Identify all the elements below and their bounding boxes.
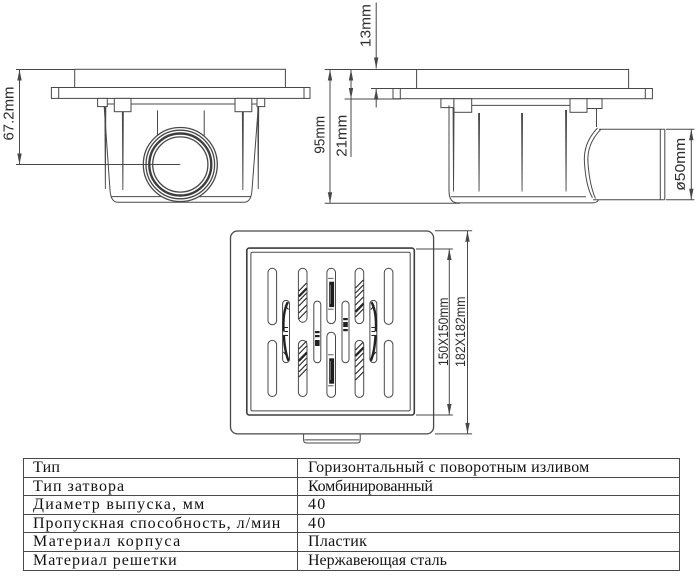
svg-text:67.2mm: 67.2mm: [2, 87, 18, 141]
svg-text:95mm: 95mm: [313, 116, 329, 154]
svg-text:21mm: 21mm: [335, 115, 351, 157]
svg-text:13mm: 13mm: [358, 4, 374, 47]
svg-text:150X150mm: 150X150mm: [435, 298, 451, 367]
svg-text:ø50mm: ø50mm: [673, 138, 689, 191]
svg-text:182X182mm: 182X182mm: [452, 297, 468, 368]
